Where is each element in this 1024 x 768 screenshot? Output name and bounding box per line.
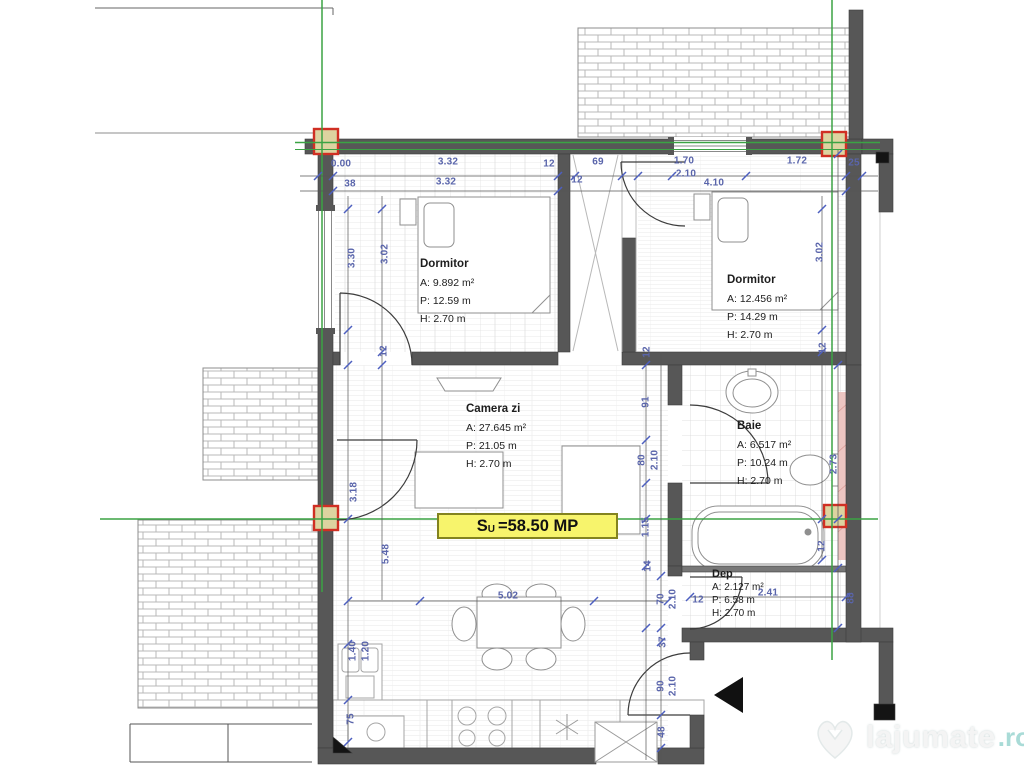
dimension-label: 1.20 <box>361 641 372 661</box>
room-name-label: Camera zi <box>466 403 526 415</box>
room-label: Dep A: 2.127 m² P: 6.58 m H: 2.70 m <box>712 568 764 619</box>
watermark-tld: .ro <box>998 722 1024 753</box>
room-perimeter: P: 10.24 m <box>737 457 791 469</box>
room-name-label: Dep <box>712 568 764 580</box>
room-area: A: 27.645 m² <box>466 422 526 434</box>
room-area: A: 12.456 m² <box>727 293 787 305</box>
room-label: Camera zi A: 27.645 m² P: 21.05 m H: 2.7… <box>466 403 526 470</box>
dimension-label: 5.48 <box>381 544 392 564</box>
watermark: lajumate.ro <box>806 712 1024 762</box>
lajumate-logo-icon <box>806 712 864 762</box>
dimension-label: 2.73 <box>829 454 840 474</box>
room-perimeter: P: 12.59 m <box>420 295 474 307</box>
room-height: H: 2.70 m <box>712 608 764 619</box>
watermark-name: lajumate <box>866 719 996 755</box>
dimension-label: 91 <box>641 396 652 408</box>
dimension-label: 48 <box>657 726 668 738</box>
label-layer: SU=58.50 MP lajumate.ro Dormitor A: 9.89… <box>0 0 1024 768</box>
area-prefix: S <box>477 517 488 536</box>
dimension-label: 88 <box>846 592 857 604</box>
dimension-label: 12 <box>818 342 829 354</box>
dimension-label: 38 <box>344 179 356 190</box>
room-height: H: 2.70 m <box>466 458 526 470</box>
room-height: H: 2.70 m <box>727 329 787 341</box>
dimension-label: 1.40 <box>348 641 359 661</box>
dimension-label: 37 <box>658 636 669 648</box>
dimension-label: 69 <box>592 157 604 168</box>
dimension-label: 25 <box>848 158 860 169</box>
floorplan-page: SU=58.50 MP lajumate.ro Dormitor A: 9.89… <box>0 0 1024 768</box>
dimension-label: 70 <box>656 593 667 605</box>
area-value: =58.50 MP <box>498 517 578 536</box>
dimension-label: 12 <box>692 595 704 606</box>
dimension-label: 12 <box>642 346 653 358</box>
dimension-label: 80 <box>637 454 648 466</box>
room-height: H: 2.70 m <box>737 475 791 487</box>
dimension-label: 3.18 <box>349 482 360 502</box>
dimension-label: 2.10 <box>668 676 679 696</box>
room-name-label: Dormitor <box>727 274 787 286</box>
dimension-label: 0.00 <box>331 159 351 170</box>
room-area: A: 2.127 m² <box>712 582 764 593</box>
usable-area-badge: SU=58.50 MP <box>437 513 618 539</box>
room-name-label: Baie <box>737 420 791 432</box>
room-height: H: 2.70 m <box>420 313 474 325</box>
dimension-label: 2.10 <box>676 169 696 180</box>
room-perimeter: P: 14.29 m <box>727 311 787 323</box>
dimension-label: 2.10 <box>650 450 661 470</box>
dimension-label: 90 <box>656 680 667 692</box>
dimension-label: 2.10 <box>668 589 679 609</box>
dimension-label: 5.02 <box>498 591 518 602</box>
dimension-label: 1.15 <box>641 517 652 537</box>
dimension-label: 1.72 <box>787 156 807 167</box>
room-label: Dormitor A: 9.892 m² P: 12.59 m H: 2.70 … <box>420 258 474 325</box>
room-name-label: Dormitor <box>420 258 474 270</box>
dimension-label: 14 <box>643 560 654 572</box>
dimension-label: 2.41 <box>758 588 778 599</box>
room-area: A: 9.892 m² <box>420 277 474 289</box>
room-perimeter: P: 21.05 m <box>466 440 526 452</box>
dimension-label: 12 <box>571 175 583 186</box>
area-subscript: U <box>488 524 495 535</box>
dimension-label: 12 <box>379 345 390 357</box>
dimension-label: 12 <box>543 159 555 170</box>
room-perimeter: P: 6.58 m <box>712 595 764 606</box>
dimension-label: 75 <box>346 713 357 725</box>
dimension-label: 4.10 <box>704 178 724 189</box>
dimension-label: 3.02 <box>815 242 826 262</box>
room-label: Dormitor A: 12.456 m² P: 14.29 m H: 2.70… <box>727 274 787 341</box>
dimension-label: 12 <box>817 540 828 552</box>
dimension-label: 1.70 <box>674 156 694 167</box>
dimension-label: 3.30 <box>347 248 358 268</box>
dimension-label: 3.02 <box>380 244 391 264</box>
room-area: A: 6.517 m² <box>737 439 791 451</box>
dimension-label: 3.32 <box>438 157 458 168</box>
dimension-label: 3.32 <box>436 177 456 188</box>
room-label: Baie A: 6.517 m² P: 10.24 m H: 2.70 m <box>737 420 791 487</box>
